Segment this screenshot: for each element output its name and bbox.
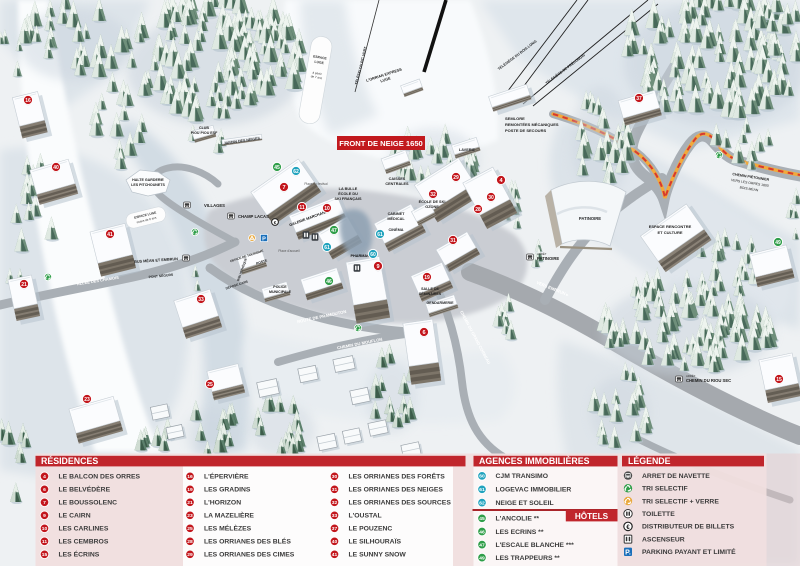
svg-text:LE BELVÉDÈRE: LE BELVÉDÈRE bbox=[59, 485, 111, 494]
svg-text:CAISSES: CAISSES bbox=[389, 177, 406, 181]
svg-text:6: 6 bbox=[43, 487, 46, 493]
svg-text:CENTRALES: CENTRALES bbox=[385, 182, 409, 186]
svg-text:LES MÉLÈZES: LES MÉLÈZES bbox=[204, 524, 252, 533]
svg-text:61: 61 bbox=[479, 487, 485, 493]
svg-text:Place du festival: Place du festival bbox=[304, 182, 328, 186]
svg-text:60: 60 bbox=[479, 474, 485, 480]
svg-text:LES CEMBROS: LES CEMBROS bbox=[59, 539, 109, 546]
svg-text:16: 16 bbox=[25, 98, 31, 104]
svg-text:PARKING PAYANT ET LIMITÉ: PARKING PAYANT ET LIMITÉ bbox=[642, 547, 736, 556]
svg-text:CABINET: CABINET bbox=[388, 212, 406, 216]
svg-text:7: 7 bbox=[282, 185, 285, 191]
svg-text:21: 21 bbox=[21, 282, 27, 288]
svg-text:10: 10 bbox=[324, 206, 330, 212]
svg-text:49: 49 bbox=[479, 555, 485, 561]
svg-text:VILLAGES: VILLAGES bbox=[204, 203, 225, 208]
svg-text:37: 37 bbox=[332, 526, 338, 532]
svg-text:RÉSIDENCES: RÉSIDENCES bbox=[41, 456, 98, 466]
svg-text:41: 41 bbox=[332, 552, 338, 558]
svg-text:NEIGE ET SOLEIL: NEIGE ET SOLEIL bbox=[496, 500, 554, 507]
svg-text:LE POUZENC: LE POUZENC bbox=[349, 526, 393, 533]
svg-text:29: 29 bbox=[187, 552, 193, 558]
svg-text:23: 23 bbox=[84, 397, 90, 403]
svg-text:47: 47 bbox=[331, 228, 337, 234]
svg-text:41: 41 bbox=[107, 232, 113, 238]
svg-text:LES ORRIANES DES SOURCES: LES ORRIANES DES SOURCES bbox=[349, 500, 452, 507]
svg-text:23: 23 bbox=[187, 513, 193, 519]
svg-text:SÉMINAIRES: SÉMINAIRES bbox=[419, 291, 442, 296]
svg-text:40: 40 bbox=[332, 539, 338, 545]
svg-text:L'ESCALE BLANCHE ***: L'ESCALE BLANCHE *** bbox=[496, 542, 575, 549]
svg-text:TRI SELECTIF: TRI SELECTIF bbox=[642, 486, 688, 493]
svg-text:33: 33 bbox=[198, 297, 204, 303]
svg-text:62: 62 bbox=[479, 500, 485, 506]
svg-text:9: 9 bbox=[376, 264, 379, 270]
svg-text:LES ORRIANES DES FORÊTS: LES ORRIANES DES FORÊTS bbox=[349, 472, 446, 481]
svg-text:61: 61 bbox=[377, 232, 383, 238]
svg-text:LES ORRIANES DES BLÉS: LES ORRIANES DES BLÉS bbox=[204, 537, 291, 546]
svg-text:40: 40 bbox=[53, 165, 59, 171]
svg-text:10: 10 bbox=[42, 526, 48, 532]
svg-text:OZONE: OZONE bbox=[425, 205, 439, 209]
svg-text:€: € bbox=[274, 220, 277, 225]
svg-text:LE SILHOURAÏS: LE SILHOURAÏS bbox=[349, 538, 402, 546]
svg-text:46: 46 bbox=[479, 529, 485, 535]
svg-text:CHEMIN DU RIOU SEC: CHEMIN DU RIOU SEC bbox=[686, 378, 731, 383]
svg-text:16: 16 bbox=[187, 474, 193, 480]
svg-text:TOILETTE: TOILETTE bbox=[642, 511, 675, 518]
svg-text:32: 32 bbox=[430, 192, 436, 198]
svg-text:LES CARLINES: LES CARLINES bbox=[59, 526, 109, 533]
svg-text:DISTRIBUTEUR DE BILLETS: DISTRIBUTEUR DE BILLETS bbox=[642, 524, 735, 531]
svg-text:19: 19 bbox=[424, 275, 430, 281]
svg-text:LE CAIRN: LE CAIRN bbox=[59, 513, 91, 520]
svg-text:LE BALCON DES ORRES: LE BALCON DES ORRES bbox=[59, 474, 141, 481]
svg-text:AGENCES IMMOBILIÈRES: AGENCES IMMOBILIÈRES bbox=[479, 456, 590, 466]
svg-text:ASCENSEUR: ASCENSEUR bbox=[642, 536, 685, 543]
svg-text:LES PITCHOUNETS: LES PITCHOUNETS bbox=[131, 183, 165, 187]
svg-text:ESPACE RENCONTRE: ESPACE RENCONTRE bbox=[649, 224, 692, 229]
svg-text:LES ECRINS **: LES ECRINS ** bbox=[496, 529, 544, 536]
svg-text:CJM TRANSIMO: CJM TRANSIMO bbox=[496, 473, 549, 480]
svg-text:9: 9 bbox=[43, 513, 46, 519]
svg-text:GENDARMERIE: GENDARMERIE bbox=[427, 301, 455, 305]
svg-text:11: 11 bbox=[42, 539, 47, 545]
svg-text:SEMLORE: SEMLORE bbox=[505, 116, 525, 121]
svg-text:L'OUSTAL: L'OUSTAL bbox=[349, 513, 382, 520]
svg-text:HALTE GARDERIE: HALTE GARDERIE bbox=[132, 178, 164, 182]
svg-text:TRI SELECTIF + VERRE: TRI SELECTIF + VERRE bbox=[642, 498, 719, 505]
svg-text:28: 28 bbox=[187, 539, 193, 545]
svg-text:31: 31 bbox=[332, 487, 338, 493]
svg-text:46: 46 bbox=[326, 279, 332, 285]
svg-text:21: 21 bbox=[187, 500, 193, 506]
svg-text:45: 45 bbox=[479, 516, 485, 522]
svg-text:LES ORRIANES DES CIMES: LES ORRIANES DES CIMES bbox=[204, 552, 295, 559]
svg-text:L'HORIZON: L'HORIZON bbox=[204, 500, 241, 507]
svg-text:LES ÉCRINS: LES ÉCRINS bbox=[59, 550, 100, 559]
svg-text:61: 61 bbox=[324, 245, 330, 251]
svg-text:49: 49 bbox=[775, 240, 781, 246]
svg-text:25: 25 bbox=[207, 382, 213, 388]
svg-text:Place d'accueil: Place d'accueil bbox=[278, 249, 299, 253]
svg-text:LES TRAPPEURS **: LES TRAPPEURS ** bbox=[496, 555, 561, 562]
svg-text:ÉCOLE DU: ÉCOLE DU bbox=[338, 191, 358, 196]
svg-text:31: 31 bbox=[450, 238, 456, 244]
svg-text:60: 60 bbox=[370, 252, 376, 258]
svg-text:19: 19 bbox=[187, 487, 193, 493]
svg-text:28: 28 bbox=[475, 207, 481, 213]
svg-text:LAVERIE: LAVERIE bbox=[459, 148, 476, 152]
svg-text:30: 30 bbox=[332, 474, 338, 480]
svg-text:45: 45 bbox=[274, 165, 280, 171]
svg-text:CINÉMA: CINÉMA bbox=[389, 227, 404, 232]
svg-text:LE SUNNY SNOW: LE SUNNY SNOW bbox=[349, 552, 407, 559]
svg-text:MÉDICAL: MÉDICAL bbox=[387, 216, 405, 221]
svg-text:HÔTELS: HÔTELS bbox=[575, 510, 609, 521]
svg-text:REMONTÉES MÉCANIQUES: REMONTÉES MÉCANIQUES bbox=[505, 122, 559, 127]
svg-text:4: 4 bbox=[43, 474, 46, 480]
svg-text:PATINOIRE: PATINOIRE bbox=[579, 216, 601, 221]
svg-text:SKI FRANÇAIS: SKI FRANÇAIS bbox=[334, 197, 361, 201]
svg-text:11: 11 bbox=[299, 205, 305, 211]
svg-text:MUNICIPALE: MUNICIPALE bbox=[269, 290, 292, 294]
svg-text:30: 30 bbox=[488, 195, 494, 201]
svg-text:25: 25 bbox=[187, 526, 193, 532]
svg-text:FRONT DE NEIGE 1650: FRONT DE NEIGE 1650 bbox=[339, 139, 423, 148]
svg-text:29: 29 bbox=[453, 175, 459, 181]
svg-text:L'ÉPERVIÈRE: L'ÉPERVIÈRE bbox=[204, 472, 249, 481]
svg-text:ARRET DE NAVETTE: ARRET DE NAVETTE bbox=[642, 473, 710, 480]
svg-text:LA MAZELIÈRE: LA MAZELIÈRE bbox=[204, 511, 254, 520]
svg-text:LÉGENDE: LÉGENDE bbox=[628, 456, 671, 466]
svg-text:7: 7 bbox=[43, 500, 46, 506]
svg-text:LA BULLE: LA BULLE bbox=[339, 187, 358, 191]
svg-text:ÉCOLE DE SKI: ÉCOLE DE SKI bbox=[419, 199, 446, 204]
svg-text:P.: P. bbox=[625, 549, 631, 556]
svg-text:P: P bbox=[262, 236, 266, 242]
svg-text:LES ORRIANES DES NEIGES: LES ORRIANES DES NEIGES bbox=[349, 487, 444, 494]
svg-text:POLICE: POLICE bbox=[273, 285, 287, 289]
svg-text:PATINOIRE: PATINOIRE bbox=[537, 256, 559, 261]
svg-text:15: 15 bbox=[42, 552, 48, 558]
svg-text:15: 15 bbox=[776, 377, 782, 383]
svg-text:PIOU PIOU ESF: PIOU PIOU ESF bbox=[191, 131, 218, 135]
svg-text:32: 32 bbox=[332, 500, 338, 506]
svg-text:POSTE DE SECOURS: POSTE DE SECOURS bbox=[505, 128, 546, 133]
svg-text:CHAMP LACAS: CHAMP LACAS bbox=[238, 214, 269, 219]
svg-text:37: 37 bbox=[636, 96, 642, 102]
svg-text:CLUB: CLUB bbox=[199, 126, 209, 130]
svg-text:6: 6 bbox=[422, 330, 425, 336]
svg-text:LES GRADINS: LES GRADINS bbox=[204, 487, 251, 494]
svg-text:LOGEVAC IMMOBILIER: LOGEVAC IMMOBILIER bbox=[496, 487, 572, 494]
svg-text:33: 33 bbox=[332, 513, 338, 519]
svg-text:47: 47 bbox=[479, 542, 485, 548]
svg-text:ET CULTURE: ET CULTURE bbox=[657, 230, 682, 235]
svg-text:L'ANCOLIE **: L'ANCOLIE ** bbox=[496, 516, 540, 523]
svg-text:SALLE DE: SALLE DE bbox=[421, 287, 439, 291]
svg-text:LE BOUSSOLENC: LE BOUSSOLENC bbox=[59, 500, 118, 507]
svg-text:62: 62 bbox=[293, 169, 299, 175]
